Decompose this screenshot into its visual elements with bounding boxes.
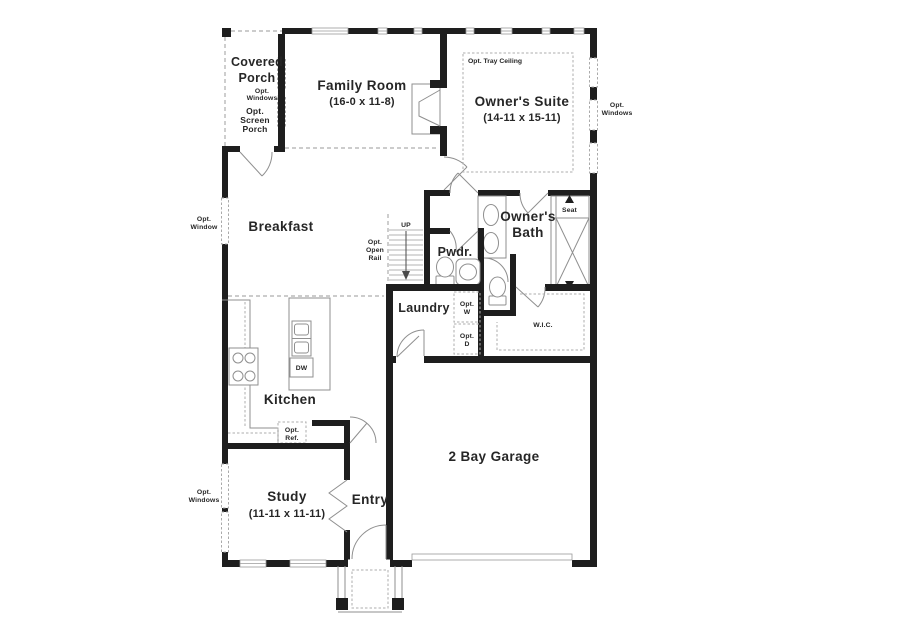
toilet-icon [436, 257, 454, 285]
garage-door [412, 554, 572, 560]
window-icon [466, 28, 474, 34]
shower: Seat [551, 195, 589, 289]
breakfast: Breakfast Opt. Window [191, 216, 384, 296]
porch-column [336, 598, 348, 610]
laundry-garage-door [397, 330, 424, 357]
suite-opt-windows-1: Opt. [610, 102, 624, 109]
pedestal-sink-icon [456, 259, 480, 285]
opt-window-left-1: Opt. [197, 216, 211, 223]
opt-open-rail-3: Rail [368, 255, 381, 262]
study-opt-windows-1: Opt. [197, 489, 211, 496]
kitchen: DW Opt. Ref. Kitchen [222, 298, 376, 449]
wic-door [516, 287, 545, 307]
opt-washer-label-1: Opt. [460, 301, 474, 308]
porch-opt-windows-2: Windows [247, 95, 278, 102]
covered-porch-label-2: Porch [239, 71, 276, 85]
family-room-dims: (16-0 x 11-8) [329, 96, 395, 108]
shower-seat-label: Seat [562, 207, 578, 214]
breakfast-label: Breakfast [248, 219, 313, 234]
porch-column [392, 598, 404, 610]
kitchen-entry-door [350, 417, 376, 443]
wic-label: W.I.C. [533, 322, 552, 329]
front-door [352, 525, 386, 559]
owners-suite: Opt. Tray Ceiling Owner's Suite (14-11 x… [463, 53, 632, 172]
toilet-icon [489, 277, 506, 305]
owners-bath-label-2: Bath [512, 225, 544, 240]
garage: 2 Bay Garage [412, 449, 572, 568]
stairs-up-label: UP [401, 222, 411, 229]
window-icon [290, 560, 326, 567]
cooktop-icon [229, 348, 258, 385]
porch-opt-windows-1: Opt. [255, 88, 269, 95]
tray-ceiling-note: Opt. Tray Ceiling [468, 58, 522, 65]
floor-plan-drawing: Covered Porch Opt. Windows Opt. Screen P… [0, 0, 916, 638]
entry-label: Entry [352, 492, 389, 507]
window-icon [378, 28, 387, 34]
study-label: Study [267, 489, 307, 504]
opt-dryer-label-2: D [464, 341, 469, 348]
porch-post [222, 28, 231, 37]
opt-open-rail-1: Opt. [368, 239, 382, 246]
opt-washer-label-2: W [464, 309, 471, 316]
sink-icon [484, 205, 499, 226]
window-icon [414, 28, 422, 34]
window-icon [312, 28, 348, 34]
dishwasher-label: DW [296, 365, 308, 372]
covered-porch: Covered Porch Opt. Windows Opt. Screen P… [222, 28, 285, 176]
hall-door [444, 157, 467, 190]
opt-dryer-label-1: Opt. [460, 333, 474, 340]
laundry-label: Laundry [398, 301, 449, 315]
island: DW [289, 298, 330, 390]
opt-ref-label-1: Opt. [285, 427, 299, 434]
owners-suite-dims: (14-11 x 15-11) [483, 112, 561, 124]
opt-window-left-2: Window [191, 224, 218, 231]
french-doors [329, 480, 347, 532]
window-icon [501, 28, 512, 34]
window-icon [574, 28, 584, 34]
study-opt-windows-2: Windows [189, 497, 220, 504]
front-porch [336, 566, 404, 612]
window-icon [240, 560, 266, 567]
opt-screen-porch-3: Porch [242, 124, 267, 134]
opt-ref-label-2: Ref. [285, 435, 298, 442]
suite-bath-wall [424, 173, 597, 234]
owners-suite-label: Owner's Suite [475, 94, 570, 109]
study-entry: Study (11-11 x 11-11) Opt. Windows Entry [189, 449, 390, 568]
floor-plan-page: Covered Porch Opt. Windows Opt. Screen P… [0, 0, 916, 638]
opt-refrigerator: Opt. Ref. [278, 422, 306, 443]
study-dims: (11-11 x 11-11) [249, 508, 326, 520]
garage-label: 2 Bay Garage [448, 449, 539, 464]
family-room-label: Family Room [317, 78, 406, 93]
powder-room: Pwdr. [424, 228, 480, 286]
suite-opt-windows-2: Windows [602, 110, 633, 117]
owners-bath: Seat Owner's Bath [478, 195, 589, 362]
porch-door [240, 152, 272, 176]
opt-open-rail-2: Open [366, 247, 384, 254]
family-room: Family Room (16-0 x 11-8) [285, 34, 467, 190]
sink-icon [484, 233, 499, 254]
suite-entry-door [450, 173, 478, 193]
pwdr-label: Pwdr. [438, 245, 473, 259]
stairs: UP Opt. Open Rail [366, 214, 423, 286]
kitchen-label: Kitchen [264, 392, 316, 407]
fireplace [412, 80, 447, 134]
owners-bath-label-1: Owner's [500, 209, 556, 224]
window-icon [542, 28, 550, 34]
covered-porch-label-1: Covered [231, 55, 283, 69]
laundry: Opt. W Opt. D Laundry [386, 284, 597, 560]
